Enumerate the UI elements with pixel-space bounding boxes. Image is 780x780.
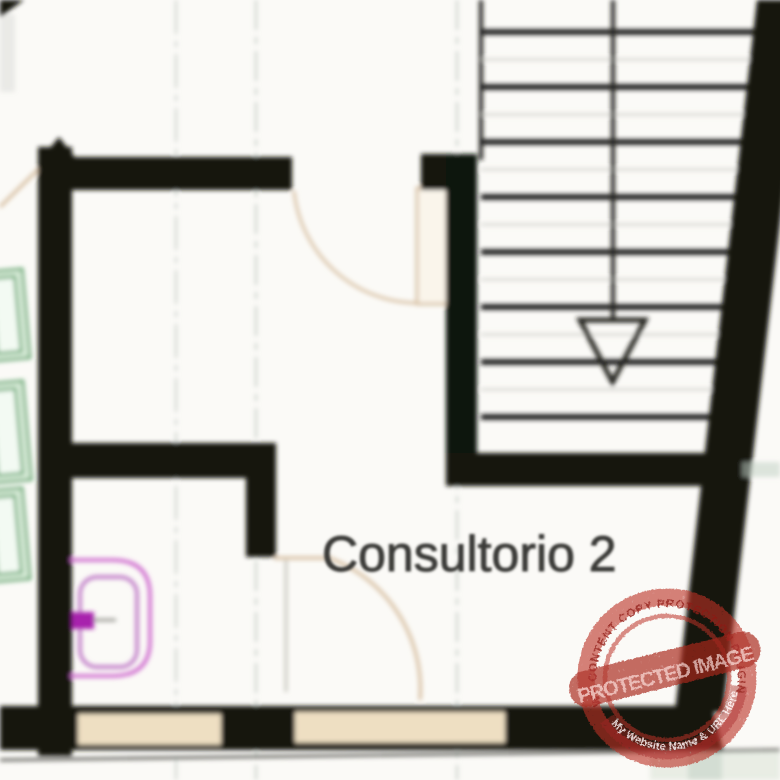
svg-text:Consultorio 2: Consultorio 2 [322, 526, 617, 582]
